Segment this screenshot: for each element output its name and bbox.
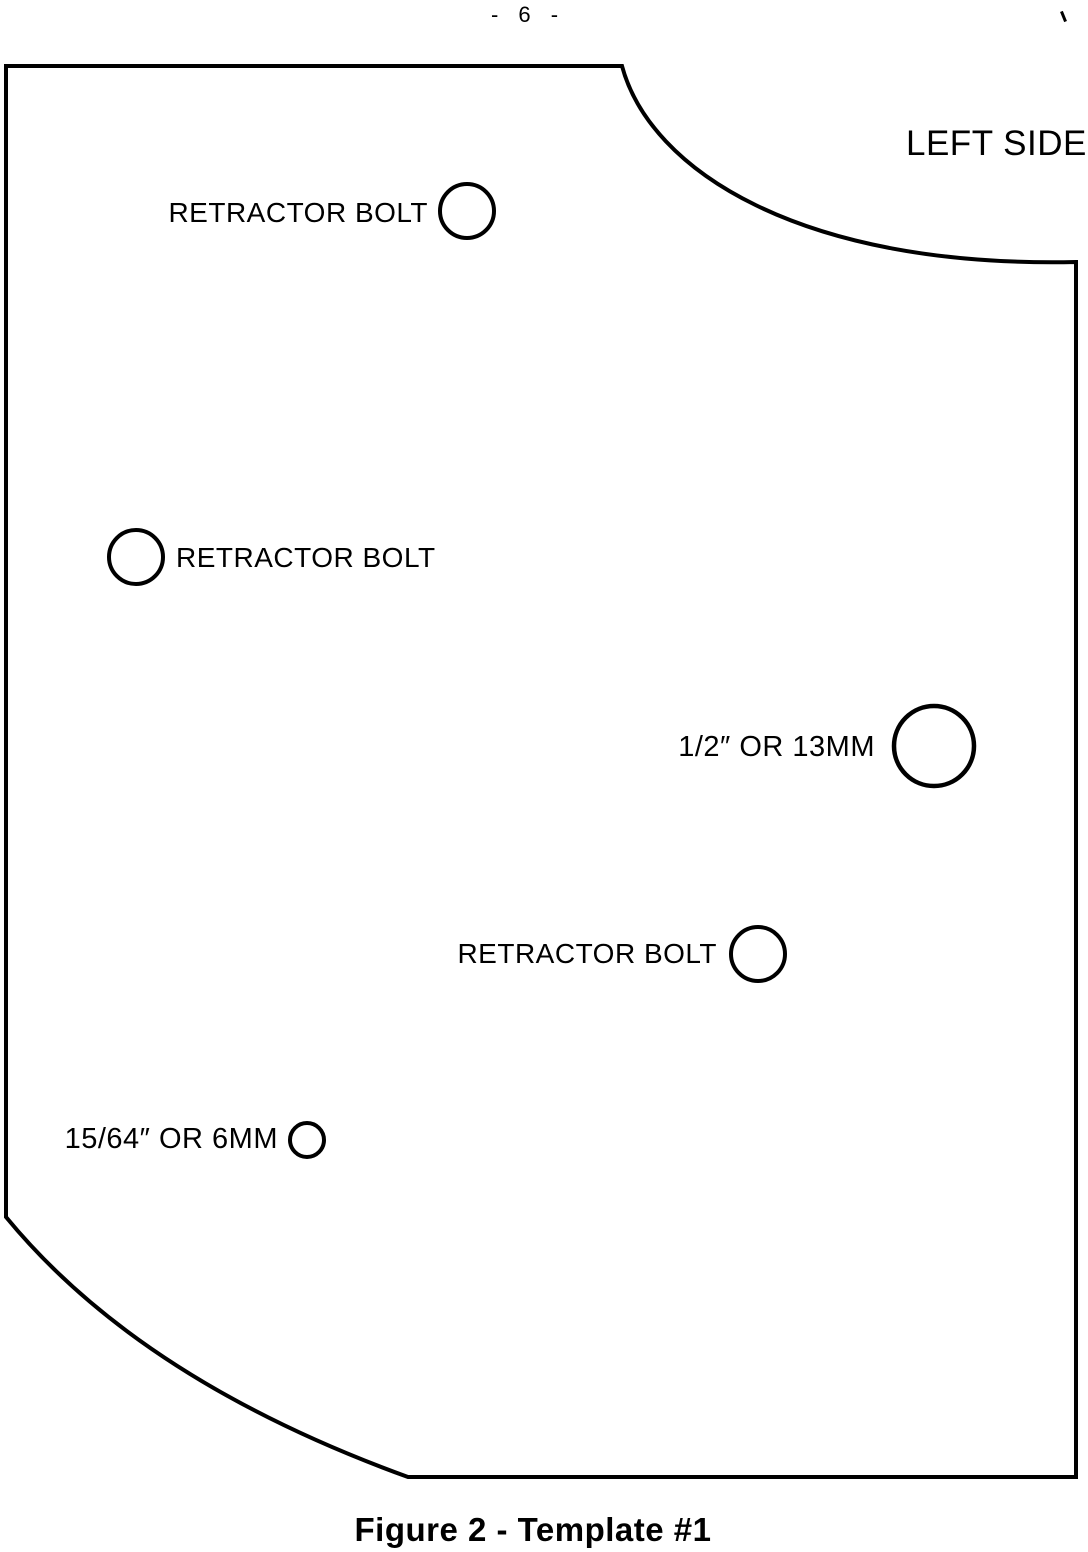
hole-label-half-inch: 1/2″ OR 13MM bbox=[600, 732, 875, 762]
hole-half-inch bbox=[894, 706, 974, 786]
figure-caption: Figure 2 - Template #1 bbox=[0, 1511, 1066, 1549]
hole-retractor-bolt-mid bbox=[731, 927, 785, 981]
hole-retractor-bolt-top bbox=[440, 184, 494, 238]
hole-label-retractor-bolt-top: RETRACTOR BOLT bbox=[150, 198, 428, 227]
document-page: - 6 - LEFT SIDE RETRACTOR BOLT RETRACTOR… bbox=[0, 0, 1088, 1552]
hole-label-retractor-bolt-left: RETRACTOR BOLT bbox=[176, 543, 476, 572]
hole-label-retractor-bolt-mid: RETRACTOR BOLT bbox=[440, 939, 717, 968]
template-outline bbox=[6, 66, 1076, 1477]
hole-retractor-bolt-left bbox=[109, 530, 163, 584]
side-label: LEFT SIDE bbox=[906, 124, 1087, 164]
hole-small-drill bbox=[290, 1123, 324, 1157]
hole-label-small-drill: 15/64″ OR 6MM bbox=[60, 1124, 278, 1154]
template-drawing bbox=[0, 0, 1088, 1552]
